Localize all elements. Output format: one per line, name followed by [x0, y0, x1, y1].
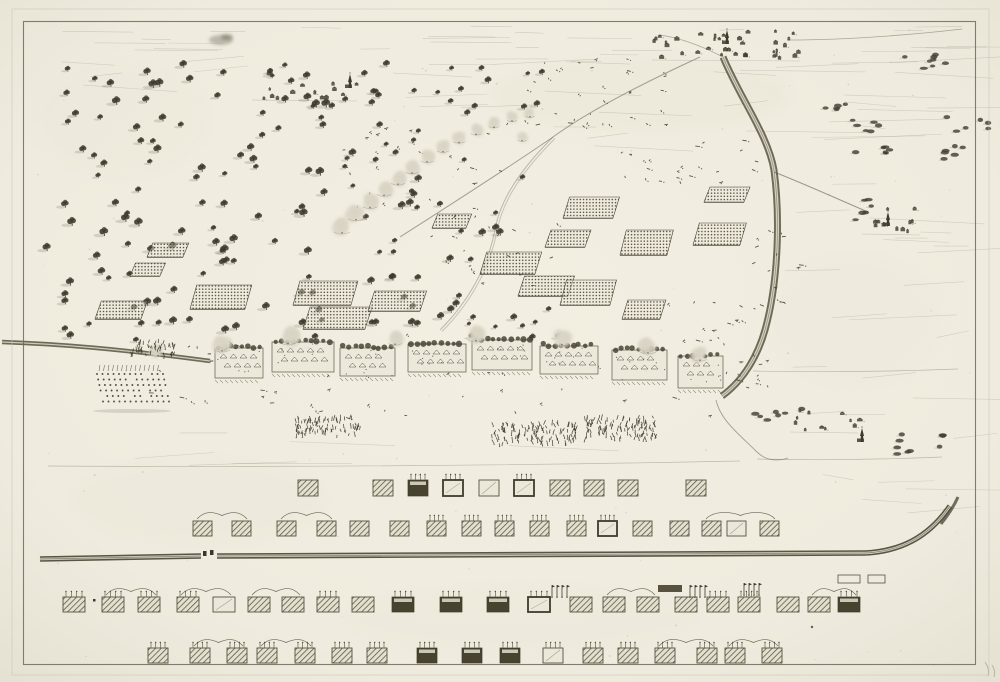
battalion-block	[686, 480, 706, 496]
troop-formation	[693, 223, 746, 245]
battalion-block	[550, 480, 570, 496]
troop-formation	[622, 300, 666, 319]
troop-formation	[704, 187, 750, 202]
battle-etching	[0, 0, 1000, 682]
redoubt	[340, 343, 395, 381]
battalion-block	[232, 521, 251, 536]
battalion-block	[633, 521, 652, 536]
battalion-block	[808, 597, 830, 612]
troop-formation	[293, 281, 358, 305]
battalion-block	[727, 521, 746, 536]
troop-formation	[620, 230, 673, 255]
battalion-block	[277, 521, 296, 536]
battalion-block	[352, 597, 374, 612]
battalion-block	[193, 521, 212, 536]
battalion-block	[670, 521, 689, 536]
redoubt	[408, 340, 466, 377]
battalion-block	[584, 480, 604, 496]
battalion-block	[637, 597, 659, 612]
redoubt	[612, 345, 667, 385]
redoubt	[540, 341, 598, 379]
solid-bar	[658, 585, 682, 592]
battalion-block	[777, 597, 799, 612]
battalion-block	[282, 597, 304, 612]
troop-formation	[560, 280, 617, 305]
troop-formation	[368, 291, 427, 311]
etching-art	[0, 0, 1000, 682]
troop-formation	[303, 307, 372, 329]
battalion-block	[248, 597, 270, 612]
troop-formation	[480, 252, 542, 274]
battalion-block	[760, 521, 779, 536]
battalion-block	[390, 521, 409, 536]
battalion-block	[570, 597, 592, 612]
troop-formation	[432, 214, 472, 228]
troop-formation	[190, 285, 252, 309]
etching-page	[0, 0, 1000, 682]
battalion-block	[298, 480, 318, 496]
battalion-block	[350, 521, 369, 536]
troop-formation	[545, 230, 591, 247]
battalion-block	[373, 480, 393, 496]
battalion-block	[317, 521, 336, 536]
battalion-block	[618, 480, 638, 496]
troop-formation	[147, 243, 189, 257]
troop-formation	[563, 197, 620, 218]
battalion-block	[603, 597, 625, 612]
battalion-block	[479, 480, 499, 496]
battalion-block	[213, 597, 235, 612]
battalion-block	[702, 521, 721, 536]
troop-formation	[95, 301, 147, 319]
troop-formation	[130, 263, 166, 276]
battalion-block	[675, 597, 697, 612]
